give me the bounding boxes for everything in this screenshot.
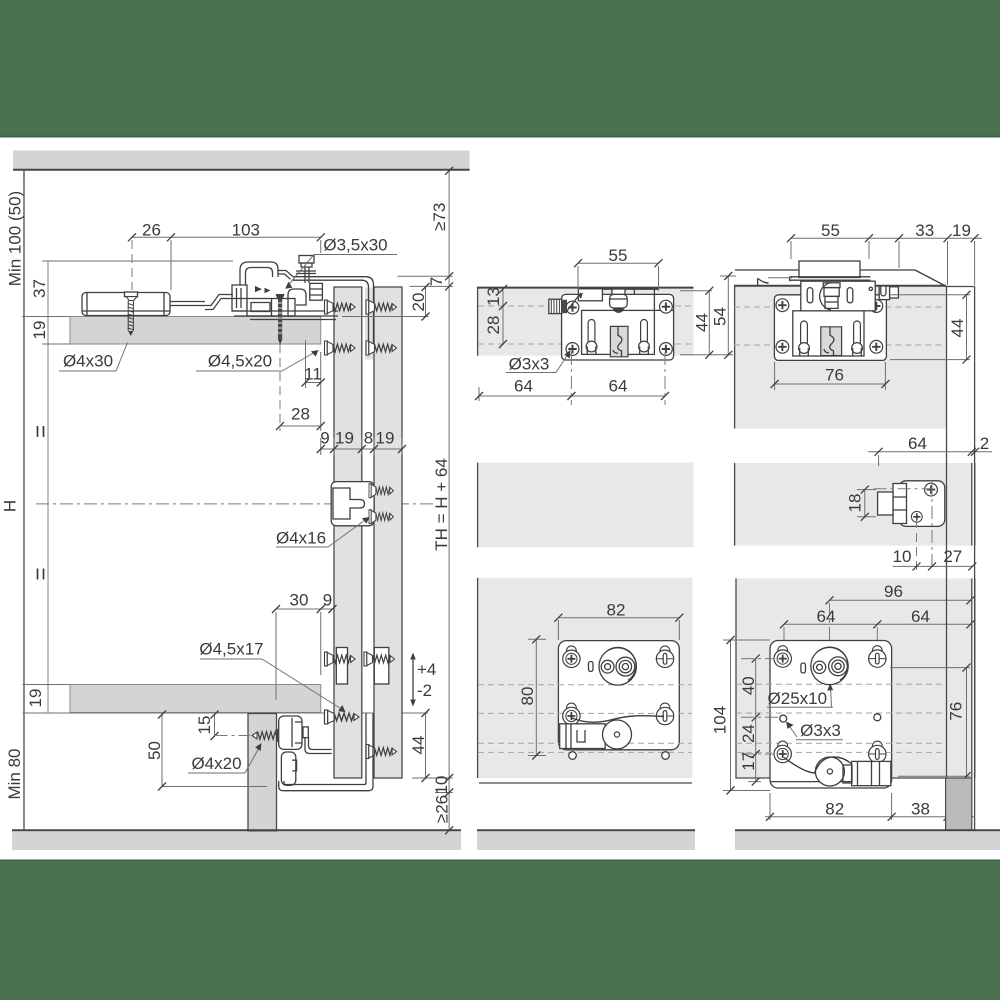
- svg-text:Ø4x16: Ø4x16: [276, 529, 326, 548]
- svg-text:28: 28: [291, 405, 310, 424]
- svg-text:82: 82: [825, 800, 844, 819]
- svg-text:38: 38: [911, 800, 930, 819]
- svg-text:8: 8: [364, 429, 373, 448]
- svg-text:44: 44: [948, 319, 967, 338]
- svg-text:96: 96: [884, 582, 903, 601]
- svg-text:30: 30: [290, 591, 309, 610]
- svg-text:10: 10: [893, 547, 912, 566]
- svg-text:13: 13: [484, 287, 503, 306]
- svg-text:19: 19: [376, 429, 395, 448]
- svg-text:19: 19: [952, 221, 971, 240]
- svg-text:76: 76: [947, 702, 966, 721]
- svg-text:82: 82: [607, 601, 626, 620]
- svg-text:26: 26: [142, 221, 161, 240]
- svg-text:64: 64: [609, 377, 628, 396]
- svg-text:103: 103: [232, 221, 260, 240]
- svg-text:≥73: ≥73: [430, 203, 449, 231]
- svg-text:Ø4,5x17: Ø4,5x17: [199, 640, 263, 659]
- svg-text:37: 37: [30, 279, 49, 298]
- svg-text:Min 100 (50): Min 100 (50): [6, 191, 25, 286]
- svg-text:33: 33: [915, 221, 934, 240]
- svg-text:7: 7: [754, 277, 773, 286]
- svg-text:Ø25x10: Ø25x10: [768, 689, 828, 708]
- svg-text:55: 55: [821, 221, 840, 240]
- svg-text:19: 19: [30, 321, 49, 340]
- svg-text:7: 7: [427, 277, 446, 286]
- svg-text:44: 44: [693, 313, 712, 332]
- svg-text:Min 80: Min 80: [5, 748, 24, 799]
- svg-text:9: 9: [320, 429, 329, 448]
- svg-text:H: H: [1, 500, 20, 512]
- svg-text:24: 24: [739, 724, 758, 743]
- svg-text:≥26: ≥26: [433, 795, 452, 823]
- svg-text:+4: +4: [417, 660, 436, 679]
- svg-text:64: 64: [908, 434, 927, 453]
- svg-text:55: 55: [609, 246, 628, 265]
- svg-text:11: 11: [304, 365, 322, 384]
- svg-text:28: 28: [484, 316, 503, 335]
- svg-text:-2: -2: [417, 681, 432, 700]
- svg-text:10: 10: [432, 776, 451, 795]
- svg-text:54: 54: [711, 307, 730, 326]
- svg-text:104: 104: [711, 706, 730, 734]
- svg-text:9: 9: [323, 591, 332, 610]
- svg-text:80: 80: [518, 687, 537, 706]
- svg-text:50: 50: [145, 741, 164, 760]
- svg-text:76: 76: [825, 366, 844, 385]
- svg-text:40: 40: [739, 676, 758, 695]
- svg-text:27: 27: [943, 547, 962, 566]
- svg-text:19: 19: [335, 429, 354, 448]
- svg-text:15: 15: [195, 716, 214, 735]
- svg-text:17: 17: [739, 752, 758, 771]
- svg-text:Ø4x30: Ø4x30: [63, 352, 113, 371]
- svg-text:2: 2: [980, 434, 989, 453]
- svg-text:Ø3,5x30: Ø3,5x30: [323, 236, 387, 255]
- svg-text:64: 64: [817, 607, 836, 626]
- svg-text:Ø4,5x20: Ø4,5x20: [208, 352, 272, 371]
- svg-text:TH = H + 64: TH = H + 64: [432, 458, 451, 551]
- svg-text:Ø4x20: Ø4x20: [191, 754, 241, 773]
- svg-text:64: 64: [911, 607, 930, 626]
- svg-text:20: 20: [409, 293, 428, 312]
- svg-text:Ø3x3: Ø3x3: [509, 355, 550, 374]
- svg-text:Ø3x3: Ø3x3: [800, 721, 841, 740]
- svg-text:64: 64: [514, 377, 533, 396]
- svg-text:19: 19: [26, 689, 45, 708]
- svg-text:44: 44: [409, 736, 428, 755]
- svg-text:18: 18: [846, 494, 865, 513]
